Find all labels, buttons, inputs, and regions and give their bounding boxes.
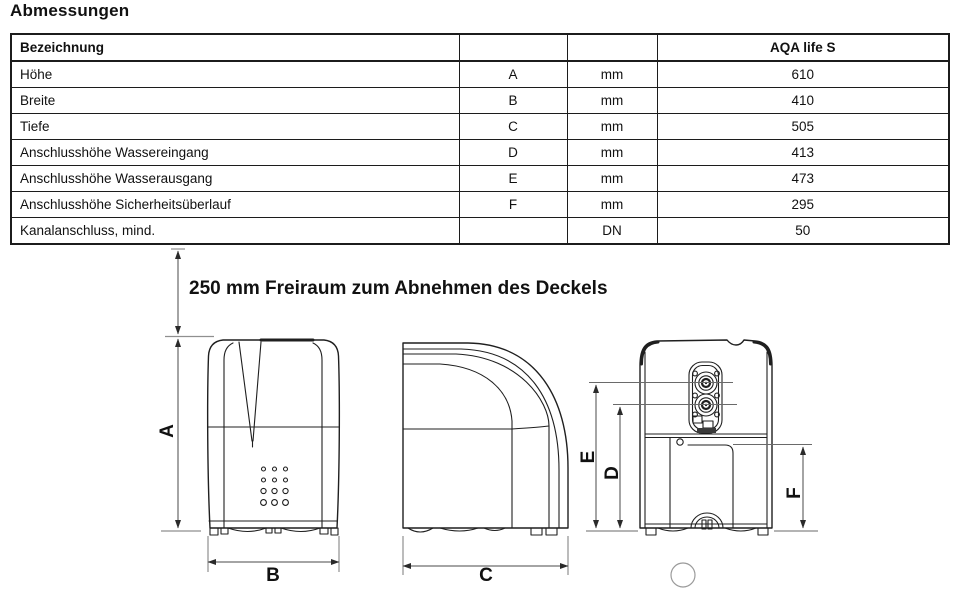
dim-b: B bbox=[208, 536, 339, 586]
cell-label: Höhe bbox=[11, 61, 459, 88]
dim-c: C bbox=[403, 536, 568, 586]
clearance-note: 250 mm Freiraum zum Abnehmen des Deckels bbox=[189, 278, 608, 299]
dim-label-f: F bbox=[784, 487, 805, 499]
top-corner-left bbox=[642, 342, 659, 364]
cell-symbol: E bbox=[459, 166, 567, 192]
header-product: AQA life S bbox=[657, 34, 949, 61]
cell-symbol: F bbox=[459, 192, 567, 218]
cell-label: Anschlusshöhe Wassereingang bbox=[11, 140, 459, 166]
rear-view bbox=[640, 340, 772, 535]
cell-label: Breite bbox=[11, 88, 459, 114]
overflow-screw bbox=[677, 439, 683, 445]
cell-value: 410 bbox=[657, 88, 949, 114]
connection-block bbox=[689, 362, 722, 433]
cell-unit: mm bbox=[567, 88, 657, 114]
cell-symbol: A bbox=[459, 61, 567, 88]
header-bezeichnung: Bezeichnung bbox=[11, 34, 459, 61]
table-header-row: Bezeichnung AQA life S bbox=[11, 34, 949, 61]
cell-unit: mm bbox=[567, 192, 657, 218]
cell-value: 505 bbox=[657, 114, 949, 140]
drain-arch bbox=[691, 513, 723, 529]
side-feet bbox=[408, 528, 557, 535]
side-seam bbox=[403, 426, 549, 429]
lid-split-groove bbox=[239, 342, 261, 447]
front-feet bbox=[210, 528, 338, 535]
dim-label-c: C bbox=[479, 565, 493, 586]
header-symbol bbox=[459, 34, 567, 61]
rear-panel-line bbox=[645, 434, 767, 438]
panel-step bbox=[688, 445, 733, 528]
dim-f: F bbox=[733, 445, 818, 532]
front-view bbox=[208, 340, 340, 535]
cell-symbol: C bbox=[459, 114, 567, 140]
cell-value: 413 bbox=[657, 140, 949, 166]
header-unit bbox=[567, 34, 657, 61]
vent-dots bbox=[261, 467, 289, 505]
table-row: Tiefe C mm 505 bbox=[11, 114, 949, 140]
cell-unit: mm bbox=[567, 166, 657, 192]
cover-edge bbox=[403, 364, 512, 429]
cell-symbol: D bbox=[459, 140, 567, 166]
water-inlet-fitting bbox=[693, 393, 720, 417]
technical-drawing: 250 mm Freiraum zum Abnehmen des Deckels… bbox=[0, 240, 957, 590]
dim-label-d: D bbox=[602, 466, 623, 480]
cell-unit: mm bbox=[567, 114, 657, 140]
dimensions-table: Bezeichnung AQA life S Höhe A mm 610 Bre… bbox=[10, 33, 950, 245]
dim-label-b: B bbox=[266, 565, 280, 586]
dim-label-a: A bbox=[157, 424, 178, 438]
dim-250-clearance: 250 mm Freiraum zum Abnehmen des Deckels bbox=[171, 249, 608, 334]
cell-label: Anschlusshöhe Sicherheitsüberlauf bbox=[11, 192, 459, 218]
table-row: Höhe A mm 610 bbox=[11, 61, 949, 88]
cell-value: 610 bbox=[657, 61, 949, 88]
table-row: Anschlusshöhe Wasserausgang E mm 473 bbox=[11, 166, 949, 192]
cell-label: Anschlusshöhe Wasserausgang bbox=[11, 166, 459, 192]
page-title: Abmessungen bbox=[10, 1, 129, 21]
callout-circle bbox=[671, 563, 695, 587]
cell-unit: mm bbox=[567, 61, 657, 88]
table-row: Anschlusshöhe Wassereingang D mm 413 bbox=[11, 140, 949, 166]
cell-unit: mm bbox=[567, 140, 657, 166]
cell-symbol: B bbox=[459, 88, 567, 114]
table-row: Breite B mm 410 bbox=[11, 88, 949, 114]
cell-value: 295 bbox=[657, 192, 949, 218]
top-corner-right bbox=[754, 342, 771, 364]
cell-value: 473 bbox=[657, 166, 949, 192]
table-row: Anschlusshöhe Sicherheitsüberlauf F mm 2… bbox=[11, 192, 949, 218]
dim-a: A bbox=[157, 337, 214, 532]
dim-label-e: E bbox=[578, 451, 599, 464]
side-view bbox=[403, 343, 568, 535]
cell-label: Tiefe bbox=[11, 114, 459, 140]
manual-page: Abmessungen Bezeichnung AQA life S Höhe … bbox=[0, 0, 957, 590]
